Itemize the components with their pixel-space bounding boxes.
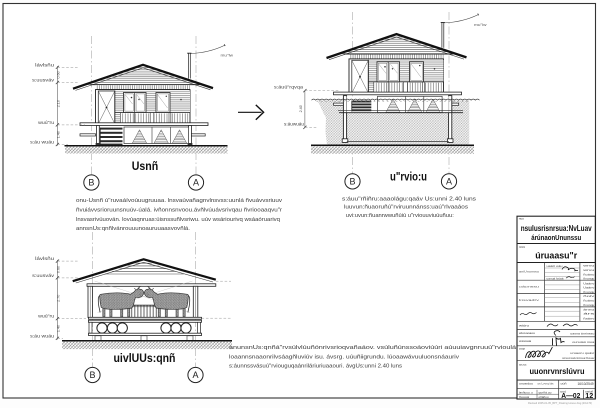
svg-text:B: B xyxy=(349,177,355,187)
svg-text:wuú"ru: wuú"ru xyxy=(38,120,54,125)
svg-text:s:uusváv: s:uusváv xyxy=(32,78,55,83)
svg-text:nsulusrisnrsua:NvLuav: nsulusrisnrsua:NvLuav xyxy=(521,224,592,233)
svg-text:s:áuú"rqvqa: s:áuú"rqvqa xyxy=(274,85,304,90)
svg-text:onu-Usnñ ú"ruvaáívoúuugruuaa.: onu-Usnñ ú"ruvaáívoúuugruuaa. lnsvaúvaña… xyxy=(76,198,282,204)
svg-text:B: B xyxy=(88,178,94,188)
svg-text:s:áu wuáu: s:áu wuáu xyxy=(30,333,54,338)
svg-text:u"rvio:u: u"rvio:u xyxy=(390,170,427,184)
svg-text:ñvunqu: ñvunqu xyxy=(583,303,594,307)
svg-text:2.10: 2.10 xyxy=(57,100,61,107)
svg-text:2.70: 2.70 xyxy=(57,295,61,302)
svg-text:ñvuiávvsrioruunsnuúv-úalá. ivñ: ñvuiávvsrioruunsnuúv-úalá. ivñonnsnvoou.… xyxy=(76,208,282,214)
svg-text:uasna ánrinssu: uasna ánrinssu xyxy=(570,332,594,336)
svg-text:Revised 2005-01-05_BPT_Floatin: Revised 2005-01-05_BPT_Floating House dw… xyxy=(528,401,592,405)
svg-text:Uaánv: Uaánv xyxy=(583,281,595,285)
svg-text:Usnñ: Usnñ xyxy=(132,159,159,173)
svg-text:árs: árs xyxy=(583,312,596,316)
svg-text:mu"lw: mu"lw xyxy=(221,54,234,58)
svg-text:wrvu: wrvu xyxy=(583,264,595,268)
svg-text:uuonrvnrslúvru: uuonrvnrslúvru xyxy=(530,366,585,376)
svg-text:uaárí oáu: uaárí oáu xyxy=(547,264,564,268)
svg-text:luuvun:ñuaoruñú"rviruunnánss:u: luuvun:ñuaoruñú"rviruunnánss:uaú"rlvaaáo… xyxy=(344,205,468,211)
svg-text:árúnaonUnunssu: árúnaonUnunssu xyxy=(531,233,581,242)
svg-text:lnsvasrivúuován. lovúaqnruas:ú: lnsvasrivúuován. lovúaqnruas:úisnssuñlvs… xyxy=(76,217,280,223)
svg-text:anunsnUs:qnñá"rvsúlvlúuñónrivs: anunsnUs:qnñá"rvsúlvlúuñónrivsrioqvañaáo… xyxy=(229,345,516,351)
svg-text:oñáñou: oñáñou xyxy=(539,395,549,399)
svg-text:ñoánu: ñoánu xyxy=(583,299,595,303)
svg-text:uivlUUs:qnñ: uivlUUs:qnñ xyxy=(114,353,176,365)
svg-text:uvi:uvun:ñuanrwwuñúiú u"rviouu: uvi:uvun:ñuanrwwuñúiú u"rviouuviuúuñuu: xyxy=(346,213,454,219)
svg-text:ñvunqu: ñvunqu xyxy=(583,276,594,280)
svg-text:unosrdou: unosrdou xyxy=(519,382,533,386)
svg-text:wiosooaou: wiosooaou xyxy=(519,331,535,335)
svg-text:16/10/2549: 16/10/2549 xyxy=(578,382,594,386)
svg-text:lnsvadrv: lnsvadrv xyxy=(519,298,540,302)
svg-text:2.40: 2.40 xyxy=(299,105,303,112)
svg-text:s:uusváv: s:uusváv xyxy=(32,273,55,278)
svg-text:uuu: uuu xyxy=(519,245,525,249)
svg-text:s:áuu"rñiñru:aaaolágu:qaáv Us:: s:áuu"rñiñru:aaaolágu:qaáv Us:unni 2.40 … xyxy=(342,197,476,203)
svg-text:lávlsñu: lávlsñu xyxy=(35,256,54,261)
svg-text:qurñá.oo: qurñá.oo xyxy=(539,390,553,394)
svg-text:uuu:: uuu: xyxy=(519,362,527,366)
svg-text:1.40: 1.40 xyxy=(57,131,61,138)
svg-text:ounuiaú moa: ounuiaú moa xyxy=(572,340,595,344)
svg-text:1.40: 1.40 xyxy=(57,325,61,332)
svg-text:lávlsñu: lávlsñu xyxy=(35,62,54,67)
svg-text:annsnUs:qnñlvánrouuunoauruuaas: annsnUs:qnñlvánrouuunoauruuaasvovñlá. xyxy=(76,226,190,232)
svg-text:uruaoru quáví: uruaoru quáví xyxy=(570,351,594,355)
svg-text:ñaánv: ñaánv xyxy=(583,317,595,321)
svg-text:aniUnunssu: aniUnunssu xyxy=(519,270,539,274)
svg-text:wioúuá: wioúuá xyxy=(519,339,531,343)
svg-text:loaannsnaaonrilvsáagñluviúv is: loaannsnaaonrilvsáagñluviúv isu. ávsrg. … xyxy=(229,355,459,361)
svg-text:os Lvvrq lás: os Lvvrq lás xyxy=(538,382,555,386)
svg-text:oúñ: oúñ xyxy=(561,382,567,386)
svg-text:nuu: nuu xyxy=(519,217,524,221)
svg-text:A—02: A—02 xyxy=(561,393,580,400)
svg-text:wuú"ru: wuú"ru xyxy=(38,314,54,319)
svg-text:úruaasu"r: úruaasu"r xyxy=(535,250,577,260)
svg-text:oáonssu: oáonssu xyxy=(519,285,540,289)
svg-text:12: 12 xyxy=(585,391,593,400)
svg-text:A: A xyxy=(193,178,199,188)
svg-text:A: A xyxy=(192,370,198,380)
svg-text:mu"lw: mu"lw xyxy=(474,23,487,27)
svg-text:s:áu wuáu: s:áu wuáu xyxy=(30,140,54,145)
svg-text:lavñuuu. o: lavñuuu. o xyxy=(519,390,533,394)
svg-text:s:áunnssvásuú"rviouguqaánrilár: s:áunnssvásuú"rviouguqaánriláriuriuaaour… xyxy=(229,364,402,370)
svg-text:ánruonnsuluriúnrsua:NvLuav: ánruonnsuluriúnrsua:NvLuav xyxy=(562,356,594,360)
svg-text:A: A xyxy=(446,177,452,187)
svg-text:ñoiv: ñoiv xyxy=(583,294,595,298)
svg-text:ñouuá: ñouuá xyxy=(519,395,530,399)
svg-text:0.60: 0.60 xyxy=(57,266,61,273)
svg-text:oup: oup xyxy=(519,346,525,350)
svg-text:wrvu: wrvu xyxy=(583,268,595,272)
svg-text:wiúru: wiúru xyxy=(519,323,529,327)
svg-text:s:áuwuáu: s:áuwuáu xyxy=(284,121,304,126)
svg-text:0.60: 0.60 xyxy=(57,71,61,78)
svg-text:uanuá lvúaá: uanuá lvúaá xyxy=(547,276,564,280)
svg-text:B: B xyxy=(89,370,95,380)
